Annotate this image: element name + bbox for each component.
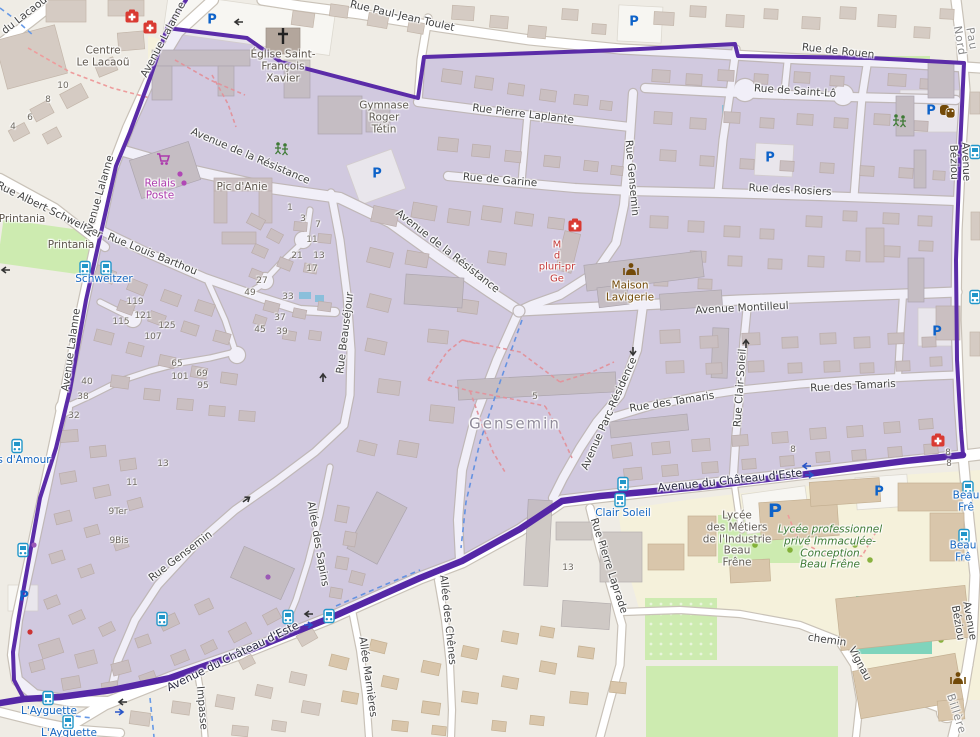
svg-text:P: P (926, 104, 936, 119)
parking-icon: P (207, 13, 217, 28)
bus-stop-icon (970, 146, 980, 159)
parking-icon: P (629, 15, 639, 30)
svg-text:P: P (765, 151, 775, 166)
poi-dot (177, 171, 182, 176)
bus-stop-icon (615, 494, 625, 507)
svg-text:P: P (768, 500, 782, 522)
poi-dot (265, 574, 270, 579)
parking-icon: P (765, 151, 775, 166)
map-canvas[interactable]: PPPPPPPPP (0, 0, 980, 737)
parking-icon: P (372, 167, 382, 182)
svg-text:P: P (372, 167, 382, 182)
bus-stop-icon (12, 440, 22, 453)
parking-icon: P (926, 104, 936, 119)
svg-text:P: P (874, 485, 884, 500)
bus-stop-icon (963, 482, 973, 495)
svg-text:P: P (629, 15, 639, 30)
bus-stop-icon (283, 611, 293, 624)
bus-stop-icon (618, 478, 628, 491)
bus-stop-icon (80, 262, 90, 275)
bus-stop-icon (43, 692, 53, 705)
poi-dot (31, 542, 36, 547)
bus-stop-icon (959, 530, 969, 543)
bus-stop-icon (324, 610, 334, 623)
bus-stop-icon (101, 262, 111, 275)
bus-stop-icon (63, 716, 73, 729)
bus-stop-icon (157, 613, 167, 626)
parking-icon: P (932, 325, 942, 340)
parking-icon: P (19, 590, 29, 605)
poi-dot (181, 180, 186, 185)
bus-stop-icon (970, 291, 980, 304)
svg-text:P: P (19, 590, 29, 605)
bus-stop-icon (18, 544, 28, 557)
svg-text:P: P (932, 325, 942, 340)
parking-icon: P (768, 500, 782, 522)
map-viewport[interactable]: PPPPPPPPP Rue Paul-Jean TouletRue de Rou… (0, 0, 980, 737)
svg-text:P: P (207, 13, 217, 28)
poi-dot (27, 629, 32, 634)
parking-icon: P (874, 485, 884, 500)
